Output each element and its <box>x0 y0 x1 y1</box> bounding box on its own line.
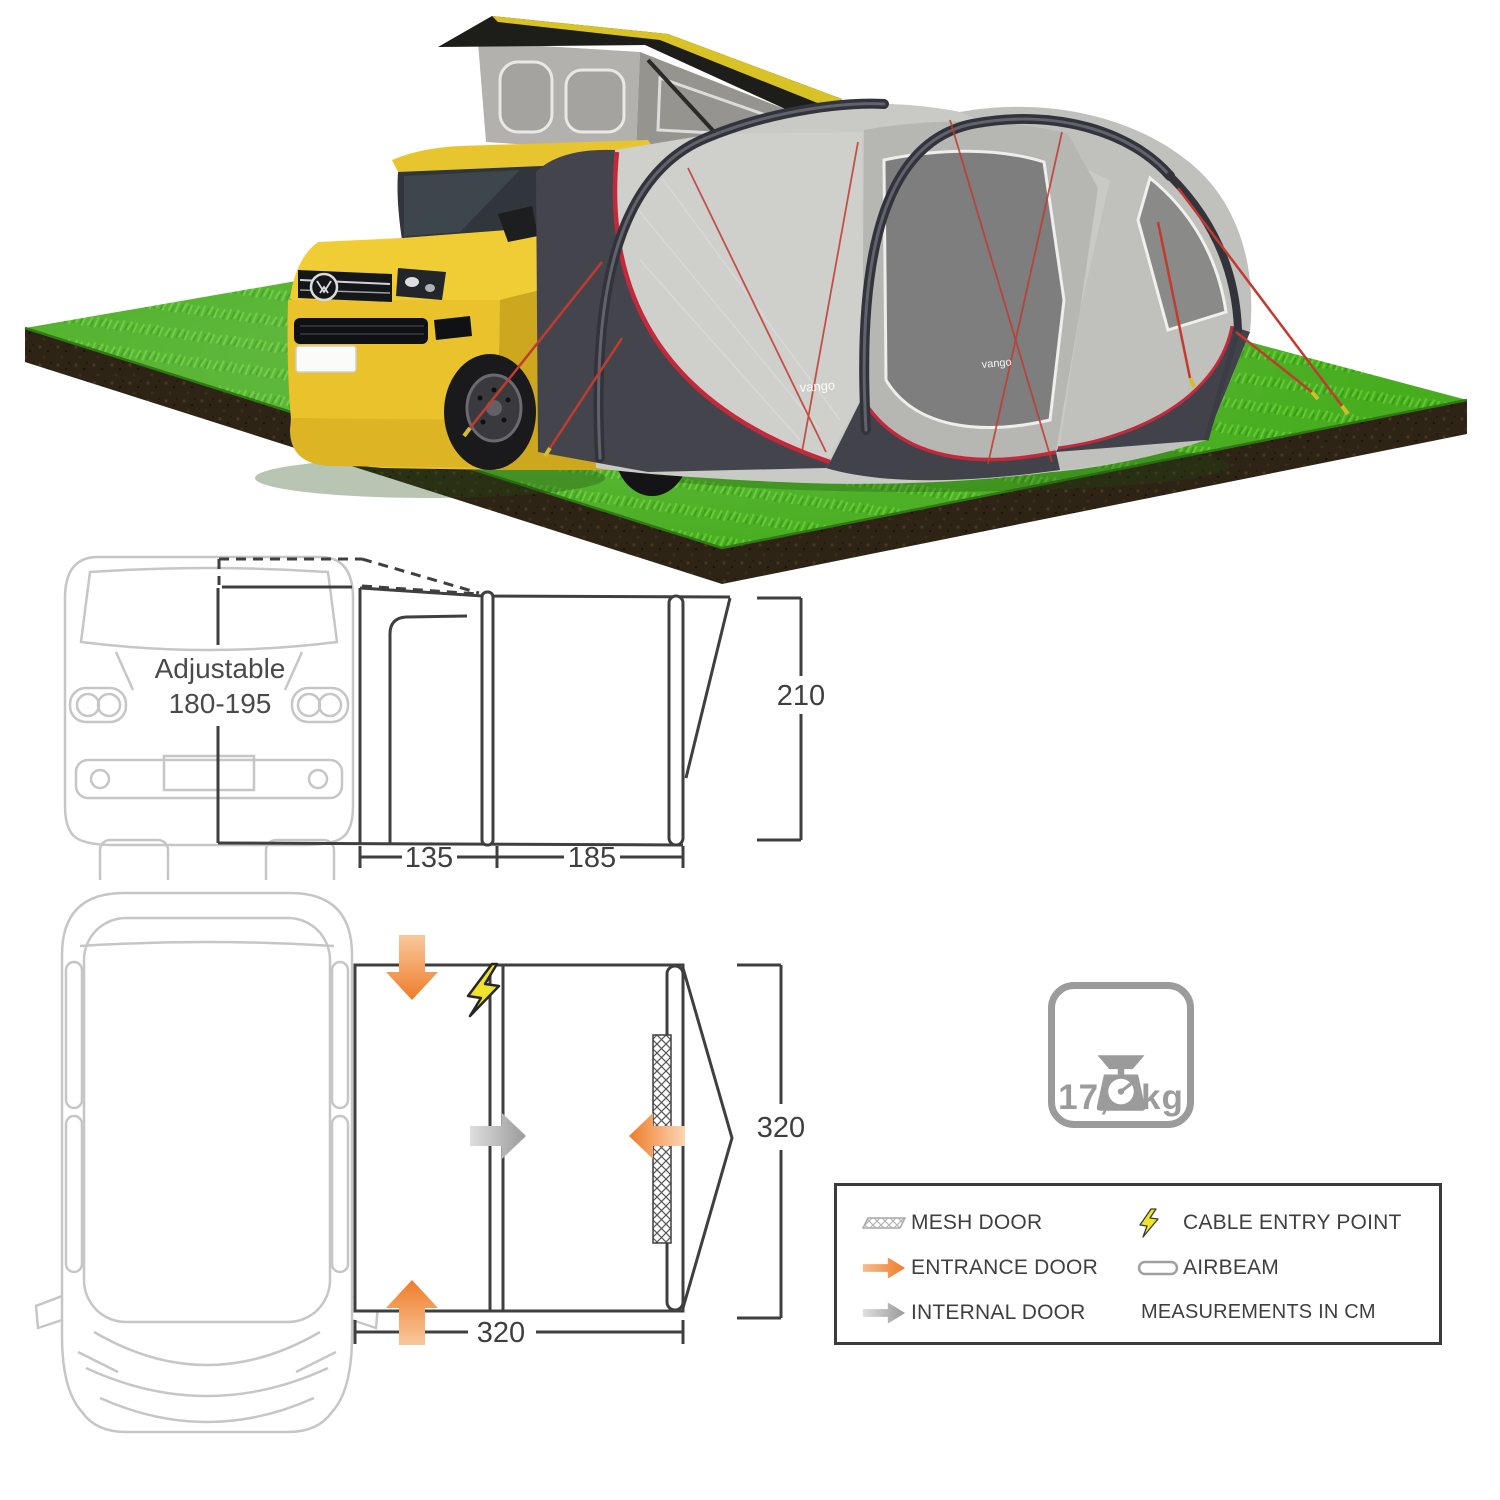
left-mirror <box>36 1296 62 1328</box>
dim-210: 210 <box>777 680 825 712</box>
legend-row-note: MEASUREMENTS IN CM <box>1137 1290 1415 1335</box>
legend-label-cable: CABLE ENTRY POINT <box>1183 1211 1402 1235</box>
legend-label-mesh: MESH DOOR <box>911 1211 1042 1235</box>
legend-label-airbeam: AIRBEAM <box>1183 1256 1279 1280</box>
legend-left-column: MESH DOOR ENTRANCE DOOR <box>837 1200 1137 1342</box>
license-plate <box>296 346 356 372</box>
side-profile-diagram: Adjustable 180-195 135 185 210 <box>20 545 840 880</box>
legend-note: MEASUREMENTS IN CM <box>1141 1301 1376 1324</box>
dim-320-depth: 320 <box>757 1112 805 1144</box>
legend-row-entrance: ENTRANCE DOOR <box>861 1245 1137 1290</box>
floor-plan-diagram: 320 320 <box>30 880 820 1440</box>
scale-icon <box>1086 1051 1156 1115</box>
legend-row-cable: CABLE ENTRY POINT <box>1137 1200 1415 1245</box>
hero-product-photo: vango vango <box>0 0 1500 600</box>
legend-label-internal: INTERNAL DOOR <box>911 1301 1086 1325</box>
brand-logo: vango <box>799 378 835 395</box>
dim-185: 185 <box>568 842 616 874</box>
legend-box: MESH DOOR ENTRANCE DOOR <box>834 1183 1442 1345</box>
adjustable-label-line1: Adjustable <box>155 653 286 684</box>
floor-plan-outline <box>355 965 781 1344</box>
legend-right-column: CABLE ENTRY POINT AIRBEAM MEASUREMENTS I… <box>1137 1200 1415 1342</box>
awning-tent: vango vango <box>536 104 1251 484</box>
dim-135: 135 <box>405 842 453 874</box>
legend-row-internal: INTERNAL DOOR <box>861 1290 1137 1335</box>
legend-row-mesh: MESH DOOR <box>861 1200 1137 1245</box>
product-spec-sheet: vango vango <box>0 0 1500 1500</box>
door-window <box>884 151 1064 427</box>
adjustable-label-line2: 180-195 <box>169 688 272 719</box>
van-top-outline <box>36 893 378 1432</box>
dim-320-width: 320 <box>477 1317 525 1349</box>
legend-label-entrance: ENTRANCE DOOR <box>911 1256 1098 1280</box>
awning-profile <box>218 559 801 868</box>
legend-row-airbeam: AIRBEAM <box>1137 1245 1415 1290</box>
weight-badge: 17,6 kg <box>1048 982 1194 1128</box>
